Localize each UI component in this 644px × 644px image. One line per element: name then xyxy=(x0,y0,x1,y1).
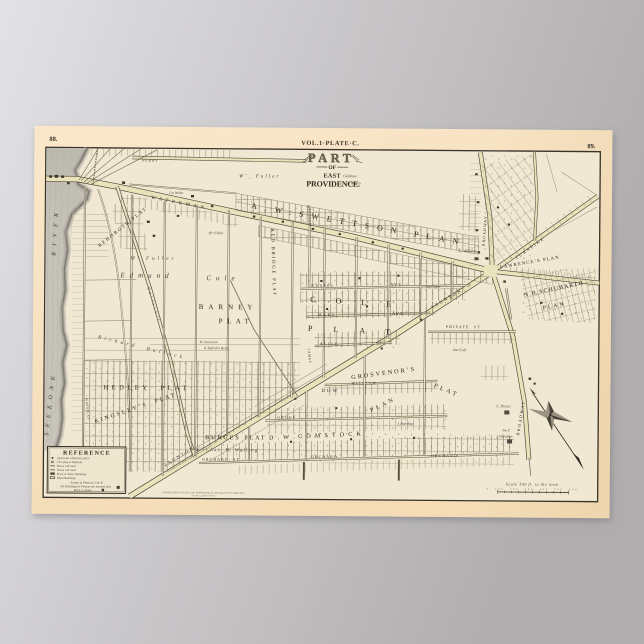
svg-text:ALICE: ALICE xyxy=(320,341,339,346)
svg-text:88.: 88. xyxy=(49,136,58,143)
svg-text:ORCHARD: ORCHARD xyxy=(431,454,458,458)
svg-text:ORCHARD: ORCHARD xyxy=(311,455,338,459)
svg-text:RUSSEL: RUSSEL xyxy=(311,283,335,288)
svg-text:OF: OF xyxy=(328,165,336,171)
svg-text:PLAT: PLAT xyxy=(219,317,254,325)
svg-text:ST: ST xyxy=(376,340,384,345)
svg-text:89.: 89. xyxy=(587,143,596,150)
svg-text:DOW: DOW xyxy=(321,389,339,394)
svg-text:AVE.: AVE. xyxy=(392,311,407,316)
svg-text:GROVE: GROVE xyxy=(277,416,296,420)
svg-text:Brick or Stone: Brick or Stone xyxy=(74,488,93,492)
svg-text:ORCHARD ST: ORCHARD ST xyxy=(202,458,240,462)
svg-text:VOL.1·PLATE·C.: VOL.1·PLATE·C. xyxy=(301,140,359,147)
svg-text:Wood Buildings: Wood Buildings xyxy=(57,476,77,480)
svg-text:Cut Works: Cut Works xyxy=(169,191,184,195)
svg-text:Jos Grant: Jos Grant xyxy=(425,285,441,289)
svg-text:PRIVATE ST: PRIVATE ST xyxy=(446,325,481,329)
svg-text:G. Williams: G. Williams xyxy=(459,249,477,253)
svg-text:PROVIDENCE.: PROVIDENCE. xyxy=(306,179,360,188)
svg-text:Ingraham: Ingraham xyxy=(498,434,513,438)
svg-text:Jno Cole: Jno Cole xyxy=(453,348,467,352)
svg-text:BURGES PLAT: BURGES PLAT xyxy=(205,435,267,441)
svg-text:Wˇ Chas. B. Walling: Wˇ Chas. B. Walling xyxy=(195,448,259,453)
svg-text:Edmund: Edmund xyxy=(119,271,173,279)
svg-text:Scale 300 ft. to the inch.: Scale 300 ft. to the inch. xyxy=(506,481,560,486)
svg-text:B. Grosvenor: B. Grosvenor xyxy=(200,340,219,344)
svg-text:Mʳˣ Fuller: Mʳˣ Fuller xyxy=(208,231,224,235)
svg-text:Mʳ Fuller: Mʳ Fuller xyxy=(129,256,176,261)
svg-text:IN THE CLERKS OFFICE: IN THE CLERKS OFFICE xyxy=(192,495,217,497)
svg-text:R. Bullock’s Heirs: R. Bullock’s Heirs xyxy=(203,346,229,350)
svg-text:MARY: MARY xyxy=(318,312,336,317)
svg-text:Jno T.: Jno T. xyxy=(502,428,511,432)
svg-text:Wˇ¸ Fuller: Wˇ¸ Fuller xyxy=(239,174,280,179)
svg-text:Cole: Cole xyxy=(206,274,239,282)
svg-text:C. Pierce: C. Pierce xyxy=(496,404,511,408)
svg-text:PART: PART xyxy=(308,151,355,165)
svg-text:WILLIAM: WILLIAM xyxy=(352,381,377,385)
svg-text:HEDLEY PLAT: HEDLEY PLAT xyxy=(103,384,190,392)
svg-text:J. Ingraham: J. Ingraham xyxy=(397,422,414,426)
svg-text:Callahan: Callahan xyxy=(343,174,357,178)
svg-text:BARNEY: BARNEY xyxy=(199,303,258,311)
svg-text:AVE.: AVE. xyxy=(390,282,405,287)
svg-text:FERRY: FERRY xyxy=(142,159,158,163)
